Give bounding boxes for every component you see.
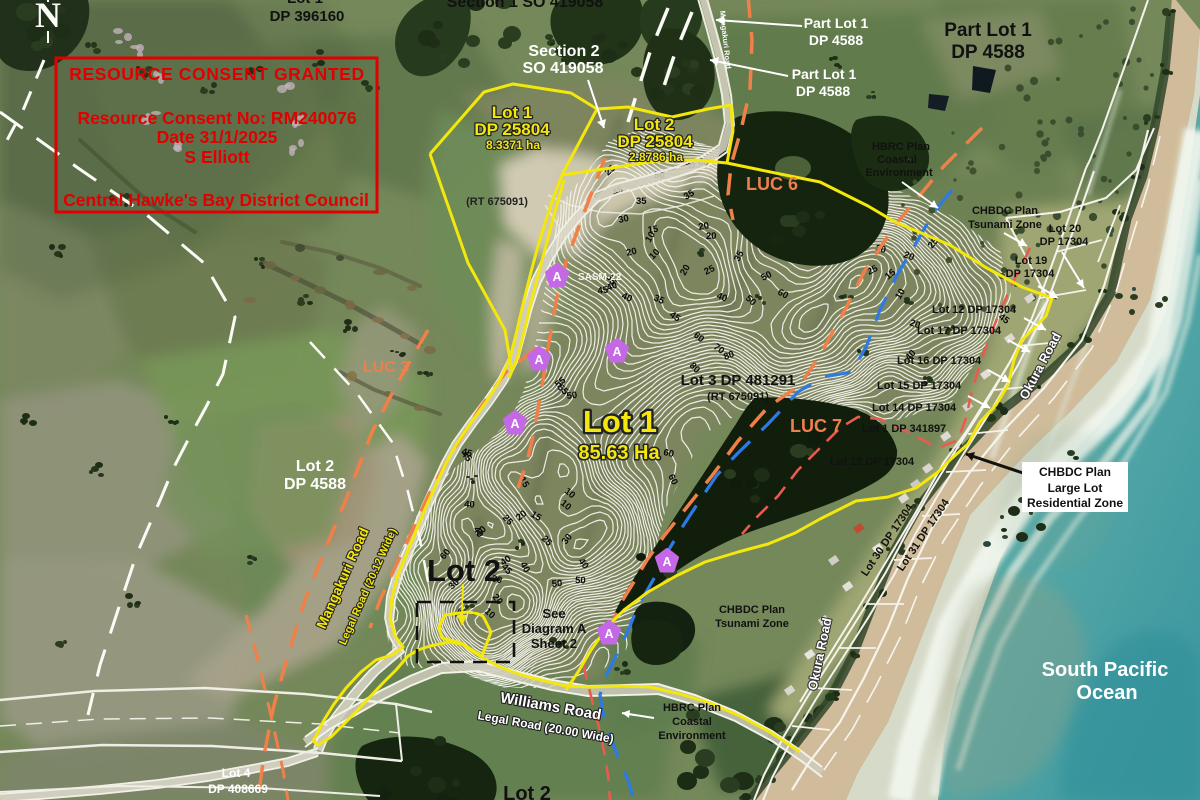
svg-text:LUC 7: LUC 7	[790, 416, 842, 436]
svg-text:20: 20	[698, 220, 710, 233]
svg-text:Lot 15 DP 17304: Lot 15 DP 17304	[877, 380, 962, 392]
svg-text:Lot 12 DP 17304: Lot 12 DP 17304	[830, 456, 915, 468]
svg-text:Residential Zone: Residential Zone	[1027, 496, 1123, 510]
svg-text:Lot 19: Lot 19	[1015, 255, 1047, 267]
svg-text:A: A	[604, 627, 613, 641]
svg-text:DP 4588: DP 4588	[809, 32, 863, 48]
svg-text:LUC 6: LUC 6	[746, 174, 798, 194]
svg-text:Part Lot 1: Part Lot 1	[804, 15, 869, 31]
svg-text:35: 35	[636, 196, 647, 207]
svg-text:Environment: Environment	[865, 167, 933, 179]
svg-text:Sheet 2: Sheet 2	[531, 636, 577, 651]
svg-text:N: N	[35, 0, 61, 35]
svg-text:Tsunami Zone: Tsunami Zone	[968, 219, 1042, 231]
svg-text:CHBDC Plan: CHBDC Plan	[972, 205, 1038, 217]
svg-text:50: 50	[575, 575, 586, 587]
svg-text:DP 17304: DP 17304	[1040, 236, 1090, 248]
svg-text:See: See	[542, 606, 565, 621]
svg-text:8.3371 ha: 8.3371 ha	[486, 138, 540, 152]
svg-text:Environment: Environment	[658, 730, 726, 742]
svg-text:Diagram A: Diagram A	[522, 621, 587, 636]
svg-text:Lot 3 DP 481291: Lot 3 DP 481291	[681, 372, 796, 389]
svg-text:Lot 2: Lot 2	[503, 783, 551, 800]
svg-text:Coastal: Coastal	[877, 154, 917, 166]
svg-text:Section 1 SO 419058: Section 1 SO 419058	[447, 0, 604, 11]
svg-text:Coastal: Coastal	[672, 716, 712, 728]
svg-text:Large Lot: Large Lot	[1048, 481, 1103, 495]
svg-text:Lot 20: Lot 20	[1049, 223, 1081, 235]
svg-text:HBRC Plan: HBRC Plan	[663, 702, 721, 714]
svg-text:Date 31/1/2025: Date 31/1/2025	[157, 127, 278, 147]
svg-text:Lot 1: Lot 1	[583, 404, 657, 439]
svg-text:Lot 12 DP 17304: Lot 12 DP 17304	[932, 304, 1017, 316]
svg-text:(RT 675091): (RT 675091)	[466, 196, 528, 208]
svg-text:A: A	[662, 555, 671, 569]
svg-text:Lot 1: Lot 1	[287, 0, 323, 7]
svg-text:A: A	[534, 353, 543, 367]
svg-text:20: 20	[706, 231, 717, 242]
svg-text:(RT 675091): (RT 675091)	[707, 391, 769, 403]
svg-text:South Pacific: South Pacific	[1042, 659, 1169, 681]
svg-text:Lot 14 DP 17304: Lot 14 DP 17304	[872, 402, 957, 414]
svg-text:Lot 17 DP 17304: Lot 17 DP 17304	[917, 325, 1002, 337]
svg-text:Ocean: Ocean	[1076, 682, 1137, 704]
svg-text:A: A	[510, 417, 519, 431]
svg-text:DP 4588: DP 4588	[951, 42, 1025, 63]
svg-text:60: 60	[662, 447, 674, 460]
svg-text:DP 25804: DP 25804	[617, 132, 693, 151]
svg-text:85.63 Ha: 85.63 Ha	[578, 442, 660, 464]
svg-text:40: 40	[464, 499, 475, 511]
svg-text:Lot 16 DP 17304: Lot 16 DP 17304	[897, 355, 982, 367]
svg-text:Lot 2: Lot 2	[296, 458, 334, 475]
svg-text:50: 50	[551, 578, 562, 590]
svg-text:Resource Consent No: RM240076: Resource Consent No: RM240076	[77, 108, 356, 128]
svg-text:A: A	[612, 345, 621, 359]
svg-text:A: A	[552, 270, 561, 284]
svg-text:Lot 2: Lot 2	[427, 553, 501, 588]
svg-text:Lot 1 DP 341897: Lot 1 DP 341897	[862, 423, 946, 435]
svg-text:Section 2: Section 2	[528, 43, 599, 60]
svg-text:HBRC Plan: HBRC Plan	[872, 141, 930, 153]
svg-text:Lot 4: Lot 4	[222, 766, 251, 780]
svg-text:DP 4588: DP 4588	[284, 476, 346, 493]
svg-text:Part Lot 1: Part Lot 1	[792, 66, 857, 82]
svg-text:Central Hawke's Bay District C: Central Hawke's Bay District Council	[63, 190, 369, 210]
svg-text:SASM-22: SASM-22	[578, 272, 622, 283]
svg-text:CHBDC Plan: CHBDC Plan	[1039, 465, 1111, 479]
svg-text:Tsunami Zone: Tsunami Zone	[715, 618, 789, 630]
svg-text:DP 25804: DP 25804	[474, 120, 550, 139]
svg-text:DP 17304: DP 17304	[1006, 268, 1056, 280]
svg-text:30: 30	[617, 213, 630, 226]
svg-text:Part Lot 1: Part Lot 1	[944, 20, 1032, 41]
svg-text:S Elliott: S Elliott	[184, 147, 249, 167]
svg-text:RESOURCE CONSENT GRANTED: RESOURCE CONSENT GRANTED	[69, 64, 364, 84]
svg-text:CHBDC Plan: CHBDC Plan	[719, 604, 785, 616]
svg-text:DP 408669: DP 408669	[208, 782, 268, 796]
svg-text:LUC 3: LUC 3	[363, 359, 409, 376]
svg-text:DP 4588: DP 4588	[796, 83, 850, 99]
svg-text:2.8786 ha: 2.8786 ha	[629, 150, 683, 164]
svg-text:DP 396160: DP 396160	[270, 8, 345, 25]
svg-text:SO 419058: SO 419058	[523, 60, 604, 77]
